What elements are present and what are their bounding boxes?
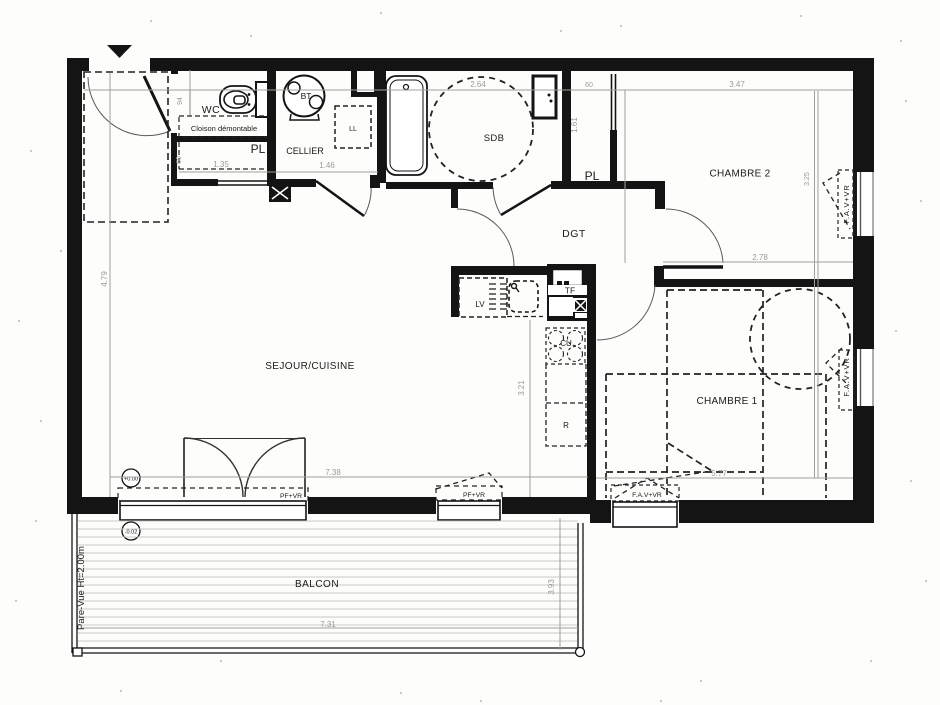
svg-text:3.25: 3.25 bbox=[804, 172, 811, 186]
svg-text:PF+VR: PF+VR bbox=[463, 492, 485, 499]
svg-text:7.38: 7.38 bbox=[325, 468, 341, 477]
svg-text:1.61: 1.61 bbox=[570, 117, 579, 133]
svg-text:1.35: 1.35 bbox=[213, 160, 229, 169]
svg-text:DGT: DGT bbox=[562, 228, 586, 240]
svg-text:SEJOUR/CUISINE: SEJOUR/CUISINE bbox=[265, 361, 355, 372]
svg-text:-0.02: -0.02 bbox=[125, 530, 138, 536]
svg-text:WC: WC bbox=[202, 104, 221, 116]
svg-text:3.21: 3.21 bbox=[517, 380, 526, 396]
svg-text:2.78: 2.78 bbox=[752, 253, 768, 262]
svg-text:LL: LL bbox=[349, 126, 357, 133]
svg-text:5.77: 5.77 bbox=[711, 469, 727, 478]
svg-text:LV: LV bbox=[475, 300, 485, 309]
svg-text:F.A.V+VR: F.A.V+VR bbox=[842, 357, 851, 396]
svg-text:BT: BT bbox=[301, 91, 312, 101]
svg-text:3.47: 3.47 bbox=[729, 80, 745, 89]
svg-text:7.31: 7.31 bbox=[320, 620, 336, 629]
svg-text:3.93: 3.93 bbox=[547, 579, 556, 595]
svg-text:CU: CU bbox=[560, 339, 572, 348]
svg-text:PL: PL bbox=[251, 142, 266, 156]
svg-text:94: 94 bbox=[177, 97, 184, 105]
svg-text:R: R bbox=[563, 421, 569, 430]
svg-text:SDB: SDB bbox=[484, 133, 504, 144]
svg-text:2.64: 2.64 bbox=[470, 80, 486, 89]
svg-text:1.46: 1.46 bbox=[319, 161, 335, 170]
svg-text:CELLIER: CELLIER bbox=[286, 146, 324, 156]
svg-text:60: 60 bbox=[176, 156, 183, 164]
svg-text:CHAMBRE 1: CHAMBRE 1 bbox=[696, 396, 757, 407]
svg-text:Pare-Vue Ht=2.00m: Pare-Vue Ht=2.00m bbox=[76, 546, 87, 630]
svg-text:60: 60 bbox=[585, 82, 593, 89]
svg-text:BALCON: BALCON bbox=[295, 579, 339, 590]
svg-text:Cloison démontable: Cloison démontable bbox=[191, 124, 257, 133]
svg-text:PL: PL bbox=[585, 169, 600, 183]
svg-text:PF+VR: PF+VR bbox=[280, 493, 302, 500]
svg-text:TF: TF bbox=[565, 286, 575, 296]
svg-text:CHAMBRE 2: CHAMBRE 2 bbox=[709, 169, 770, 180]
svg-text:4.79: 4.79 bbox=[100, 271, 109, 287]
svg-text:F.A.V+VR: F.A.V+VR bbox=[632, 492, 662, 499]
svg-text:F.A.V+VR: F.A.V+VR bbox=[842, 184, 851, 223]
